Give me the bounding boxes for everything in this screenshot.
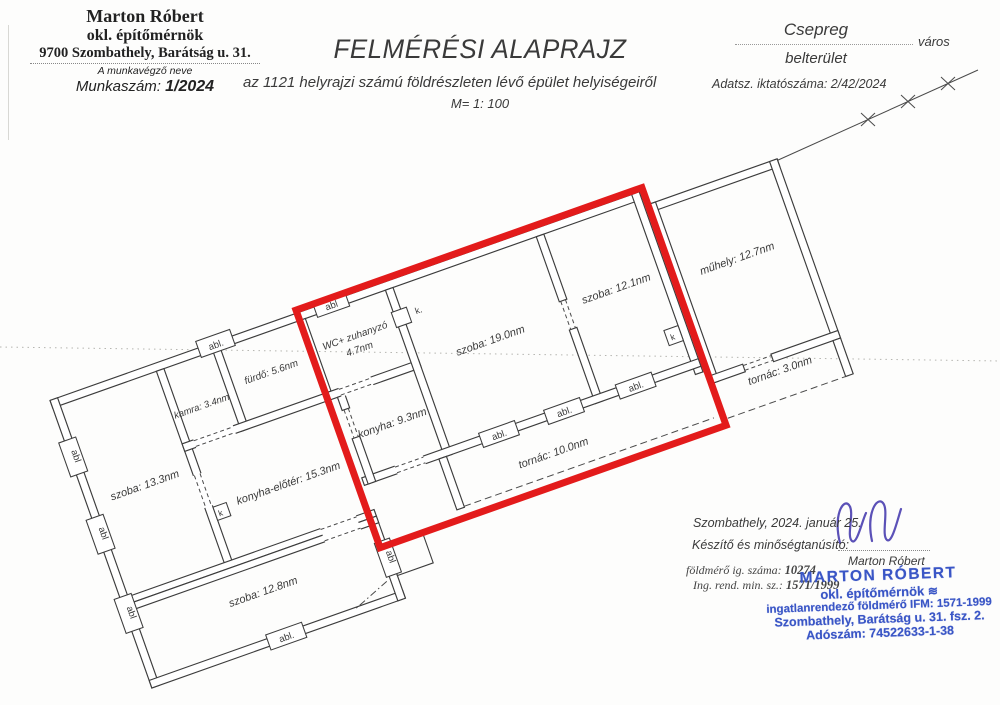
window-szoba128-bottom: abl.	[266, 622, 307, 650]
scan-artifact-line	[0, 347, 1000, 361]
chimney-label: k.	[414, 304, 424, 316]
area-type-label: belterület	[736, 50, 896, 67]
window-szoba121-tornac: abl.	[615, 372, 656, 399]
surveyor-block: Marton Róbert okl. építőmérnök 9700 Szom…	[30, 6, 260, 96]
room-label-kamra: kamra: 3.4nm	[173, 392, 231, 422]
window-konyha-tornac: abl.	[479, 421, 520, 448]
map-scale: M= 1: 100	[380, 96, 580, 111]
page-title: FELMÉRÉSI ALAPRAJZ	[298, 34, 663, 65]
room-label-muhely: műhely: 12.7nm	[698, 240, 776, 277]
surveyor-caption: A munkavégző neve	[30, 65, 260, 77]
surveyor-address: 9700 Szombathely, Barátság u. 31.	[30, 45, 260, 64]
city-dotted-line	[735, 44, 913, 45]
room-label-szoba-12-1: szoba: 12.1nm	[580, 271, 652, 306]
signature-dotted-line	[838, 550, 930, 551]
window-left-1: abl	[59, 437, 88, 477]
fence-x-mark	[941, 77, 955, 90]
stamp-logo-icon: ≋	[928, 584, 938, 598]
data-registry-number: Adatsz. iktatószáma: 2/42/2024	[712, 77, 886, 91]
surveyor-stamp: MARTON RÓBERT okl. építőmérnök ≋ ingatla…	[744, 562, 1000, 644]
room-label-szoba-13-3: szoba: 13.3nm	[109, 468, 181, 503]
page-subtitle: az 1121 helyrajzi számú földrészleten lé…	[243, 74, 713, 91]
certifier-label: Készítő és minőségtanúsító:	[692, 538, 849, 552]
room-label-konyha: konyha: 9.3nm	[356, 406, 428, 441]
work-number-line: Munkaszám: 1/2024	[30, 78, 260, 96]
surveyor-name: Marton Róbert	[30, 6, 260, 27]
city-type-label: város	[918, 34, 950, 49]
window-szoba19-tornac: abl.	[544, 398, 585, 425]
fence-x-mark	[901, 95, 915, 108]
fence-x-mark	[861, 113, 875, 126]
place-date: Szombathely, 2024. január 25.	[693, 516, 862, 530]
scanned-survey-page: { "surveyor_block": { "name": "Marton Ró…	[0, 0, 1000, 705]
scan-edge-artifact	[8, 25, 9, 140]
windows: abl. abl abl abl abl abl.	[42, 202, 696, 694]
room-label-szoba-12-8: szoba: 12.8nm	[227, 575, 299, 610]
work-number-label: Munkaszám:	[76, 78, 161, 95]
work-number-value: 1/2024	[165, 78, 214, 95]
room-label-eloter: konyha-előtér: 15.3nm	[235, 460, 342, 508]
surveyor-title: okl. építőmérnök	[30, 27, 260, 45]
room-label-furdo: fürdő: 5.6nm	[243, 358, 300, 387]
window-left-2: abl	[86, 514, 115, 554]
city-name: Csepreg	[736, 20, 896, 40]
